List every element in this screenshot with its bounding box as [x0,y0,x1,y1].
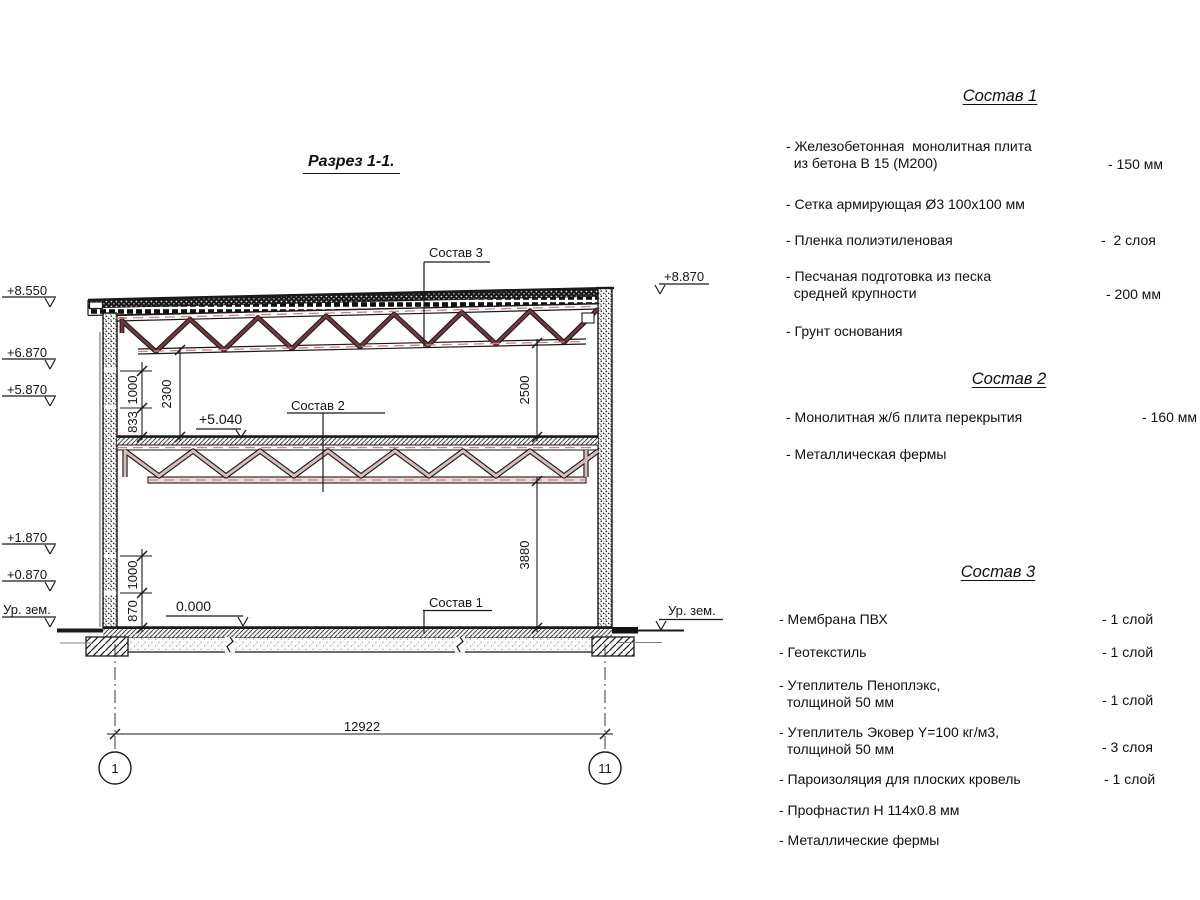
spec-heading-sostav3: Состав 3 [923,563,1073,582]
dim-2500: 2500 [517,360,533,420]
wall-right [596,288,614,628]
elevation-left-0870: +0.870 [1,567,53,582]
dim-870: 870 [125,581,141,641]
foundation-right [592,637,634,656]
spec-heading-sostav1: Состав 1 [925,87,1075,106]
wall-left [100,313,117,628]
elevation-left-5870: +5.870 [1,382,53,397]
callout-sostav1: Состав 1 [429,595,483,610]
spec-value: - 1 слой [1104,771,1155,787]
axis-label-1: 1 [103,761,127,776]
spec-value: - 200 мм [1106,286,1161,302]
spec-item: - Железобетонная монолитная плита из бет… [786,138,1116,172]
spec-value: - 150 мм [1108,156,1163,172]
spec-item: - Профнастил Н 114х0.8 мм [779,802,1109,819]
axis-label-11: 11 [593,761,617,776]
dim-span-12922: 12922 [322,719,402,734]
spec-value: - 1 слой [1102,611,1153,627]
elevation-right-8870: +8.870 [664,269,704,284]
spec-item: - Монолитная ж/б плита перекрытия [786,409,1126,426]
spec-value: - 1 слой [1102,644,1153,660]
spec-value: - 160 мм [1142,409,1197,425]
elevation-slab-5040: +5.040 [199,411,242,427]
spec-item: - Утеплитель Пеноплэкс, толщиной 50 мм [779,677,1109,711]
floor-slab-5040 [117,437,598,445]
spec-item: - Грунт основания [786,323,1116,340]
spec-value: - 3 слоя [1102,739,1153,755]
ground-floor [57,627,684,656]
elevation-left-8550: +8.550 [1,283,53,298]
spec-item: - Песчаная подготовка из песка средней к… [786,268,1116,302]
drawing-sheet: Разрез 1-1. Состав 3 Состав 2 Состав 1 +… [0,0,1200,900]
floor-truss [117,450,598,483]
ground-level-label-left: Ур. зем. [1,602,53,617]
spec-item: - Пароизоляция для плоских кровель [779,771,1119,788]
spec-item: - Утеплитель Эковер Y=100 кг/м3, толщино… [779,724,1119,758]
spec-heading-sostav2: Состав 2 [934,370,1084,389]
dim-833: 833 [125,392,141,452]
spec-item: - Металлическая фермы [786,446,1126,463]
spec-value: - 2 слоя [1101,232,1156,248]
callout-sostav2: Состав 2 [291,398,345,413]
spec-item: - Металлические фермы [779,832,1109,849]
dim-3880: 3880 [517,525,533,585]
ground-level-label-right: Ур. зем. [668,603,716,618]
spec-item: - Мембрана ПВХ [779,611,1109,628]
spec-item: - Геотекстиль [779,644,1109,661]
spec-item: - Пленка полиэтиленовая [786,232,1116,249]
truss-bearing-detail [582,313,594,323]
dimensions [99,338,621,784]
dim-2300: 2300 [159,364,175,424]
spec-value: - 1 слой [1102,692,1153,708]
callout-sostav3: Состав 3 [429,245,483,260]
spec-item: - Сетка армирующая Ø3 100х100 мм [786,196,1116,213]
foundation-left [86,637,128,656]
elevation-left-6870: +6.870 [1,345,53,360]
drawing-title: Разрез 1-1. [303,153,400,174]
roof-edge-flashing [90,302,103,309]
elevation-floor-0000: 0.000 [176,598,211,614]
elevation-left-1870: +1.870 [1,530,53,545]
